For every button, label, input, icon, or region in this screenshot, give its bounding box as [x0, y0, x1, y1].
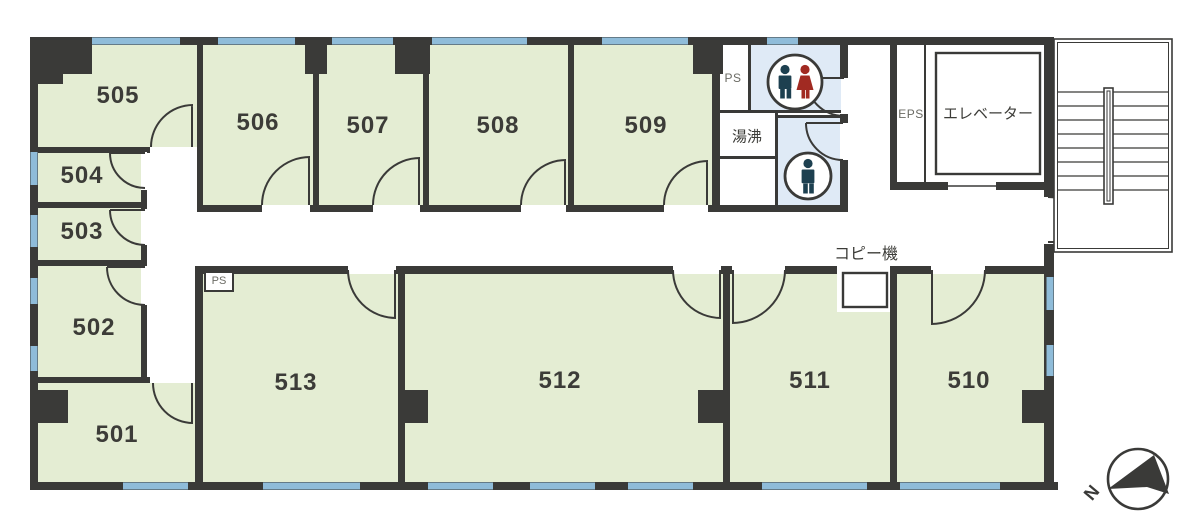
copier-machine — [843, 273, 887, 307]
male-female-restroom-icon — [768, 55, 822, 109]
room-label-512: 512 — [538, 367, 581, 395]
floor-plan: 505 506 507 508 509 504 503 502 501 513 … — [0, 0, 1200, 524]
kitchenette-label: 湯沸 — [732, 126, 762, 147]
room-label-508: 508 — [476, 112, 519, 140]
male-restroom-icon — [785, 153, 831, 199]
room-label-506: 506 — [236, 109, 279, 137]
copier-nook — [837, 266, 890, 312]
room-label-502: 502 — [72, 314, 115, 342]
room-label-503: 503 — [60, 218, 103, 246]
rooms-510-513-area — [197, 266, 1052, 486]
elevator-label: エレベーター — [943, 103, 1033, 124]
ps-top-label: PS — [724, 71, 741, 85]
floor-plan-drawing — [0, 0, 1200, 524]
room-label-509: 509 — [624, 112, 667, 140]
stair-handrail — [1104, 88, 1113, 204]
room-label-507: 507 — [346, 112, 389, 140]
room-label-504: 504 — [60, 162, 103, 190]
ps-bottom-box: PS — [204, 271, 234, 292]
copier-label: コピー機 — [834, 240, 898, 264]
room-label-505: 505 — [96, 82, 139, 110]
room-label-513: 513 — [274, 369, 317, 397]
stairs — [1054, 39, 1172, 252]
eps-label: EPS — [898, 107, 924, 121]
room-label-501: 501 — [95, 421, 138, 449]
north-arrow-icon — [1108, 449, 1169, 509]
room-label-510: 510 — [947, 367, 990, 395]
room-label-511: 511 — [789, 367, 831, 395]
